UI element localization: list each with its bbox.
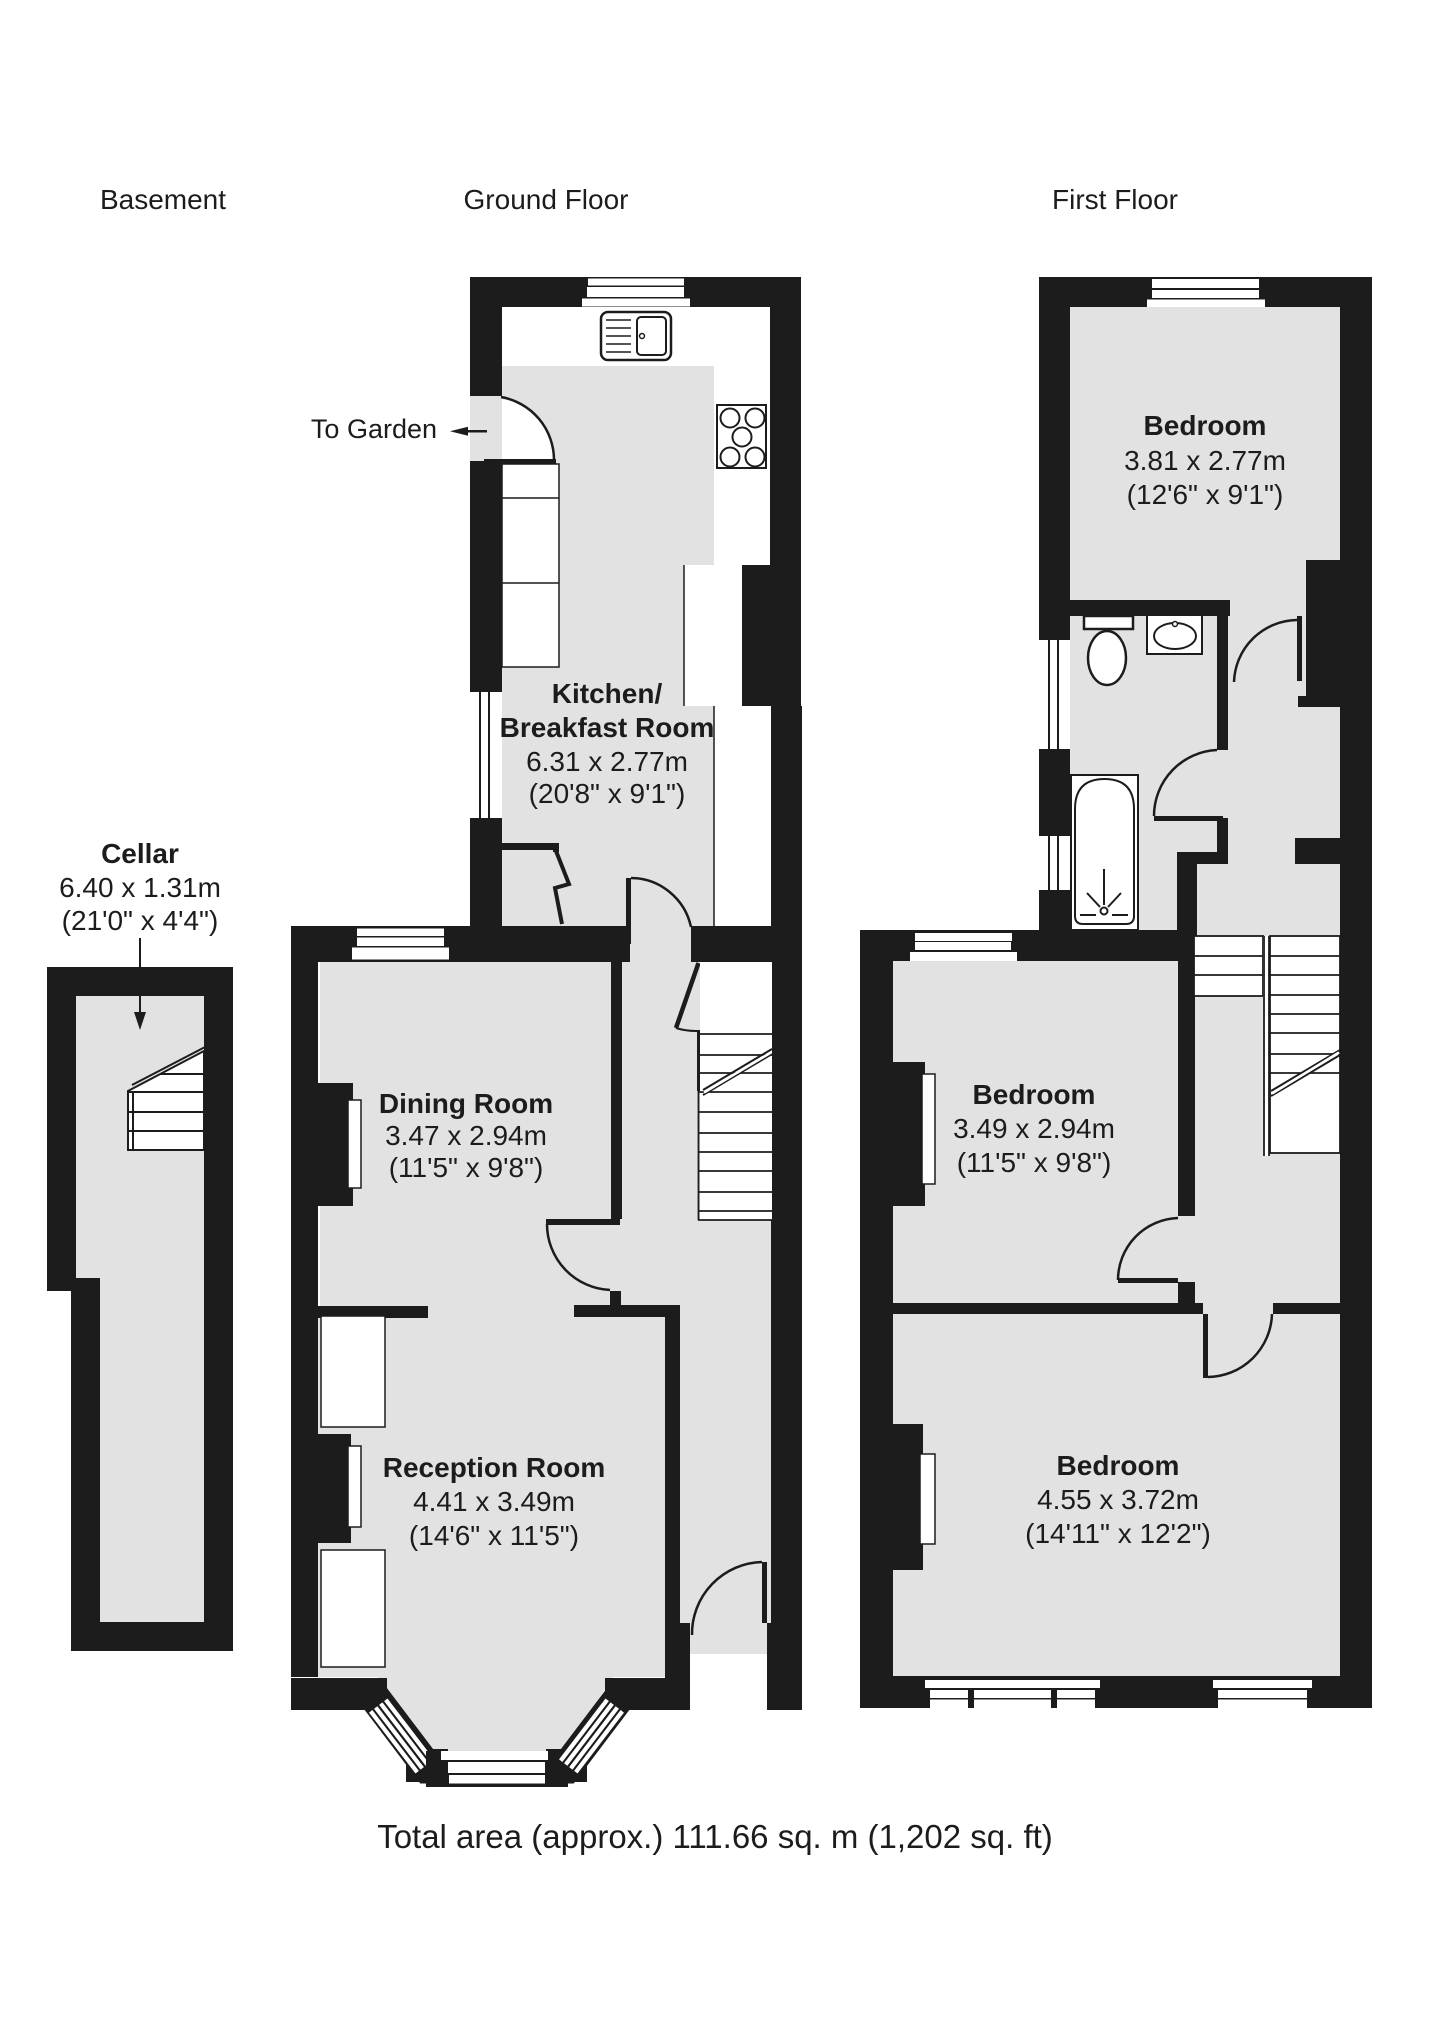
svg-text:Bedroom: Bedroom	[1057, 1450, 1180, 1481]
svg-text:Bedroom: Bedroom	[973, 1079, 1096, 1110]
svg-text:(14'6" x 11'5"): (14'6" x 11'5")	[409, 1520, 579, 1551]
svg-text:3.47 x 2.94m: 3.47 x 2.94m	[385, 1120, 547, 1151]
svg-text:Breakfast Room: Breakfast Room	[500, 712, 715, 743]
svg-text:(12'6" x 9'1"): (12'6" x 9'1")	[1127, 479, 1284, 510]
svg-text:Basement: Basement	[100, 184, 226, 215]
svg-text:Ground Floor: Ground Floor	[464, 184, 629, 215]
svg-text:4.55 x 3.72m: 4.55 x 3.72m	[1037, 1484, 1199, 1515]
svg-text:Cellar: Cellar	[101, 838, 179, 869]
svg-text:(20'8" x 9'1"): (20'8" x 9'1")	[529, 778, 686, 809]
svg-text:Bedroom: Bedroom	[1144, 410, 1267, 441]
svg-text:3.49 x 2.94m: 3.49 x 2.94m	[953, 1113, 1115, 1144]
svg-text:First Floor: First Floor	[1052, 184, 1178, 215]
svg-text:6.40 x 1.31m: 6.40 x 1.31m	[59, 872, 221, 903]
svg-text:Kitchen/: Kitchen/	[552, 678, 663, 709]
svg-text:(14'11" x 12'2"): (14'11" x 12'2")	[1025, 1518, 1211, 1549]
svg-text:(21'0" x 4'4"): (21'0" x 4'4")	[62, 905, 219, 936]
svg-text:(11'5" x 9'8"): (11'5" x 9'8")	[957, 1147, 1112, 1178]
svg-text:To Garden: To Garden	[311, 414, 437, 444]
svg-text:Reception Room: Reception Room	[383, 1452, 605, 1483]
svg-text:3.81 x 2.77m: 3.81 x 2.77m	[1124, 445, 1286, 476]
svg-text:6.31 x 2.77m: 6.31 x 2.77m	[526, 746, 688, 777]
svg-text:Total area (approx.) 111.66 sq: Total area (approx.) 111.66 sq. m (1,202…	[377, 1818, 1053, 1855]
svg-text:(11'5" x 9'8"): (11'5" x 9'8")	[389, 1152, 544, 1183]
svg-text:Dining Room: Dining Room	[379, 1088, 553, 1119]
svg-text:4.41 x 3.49m: 4.41 x 3.49m	[413, 1486, 575, 1517]
